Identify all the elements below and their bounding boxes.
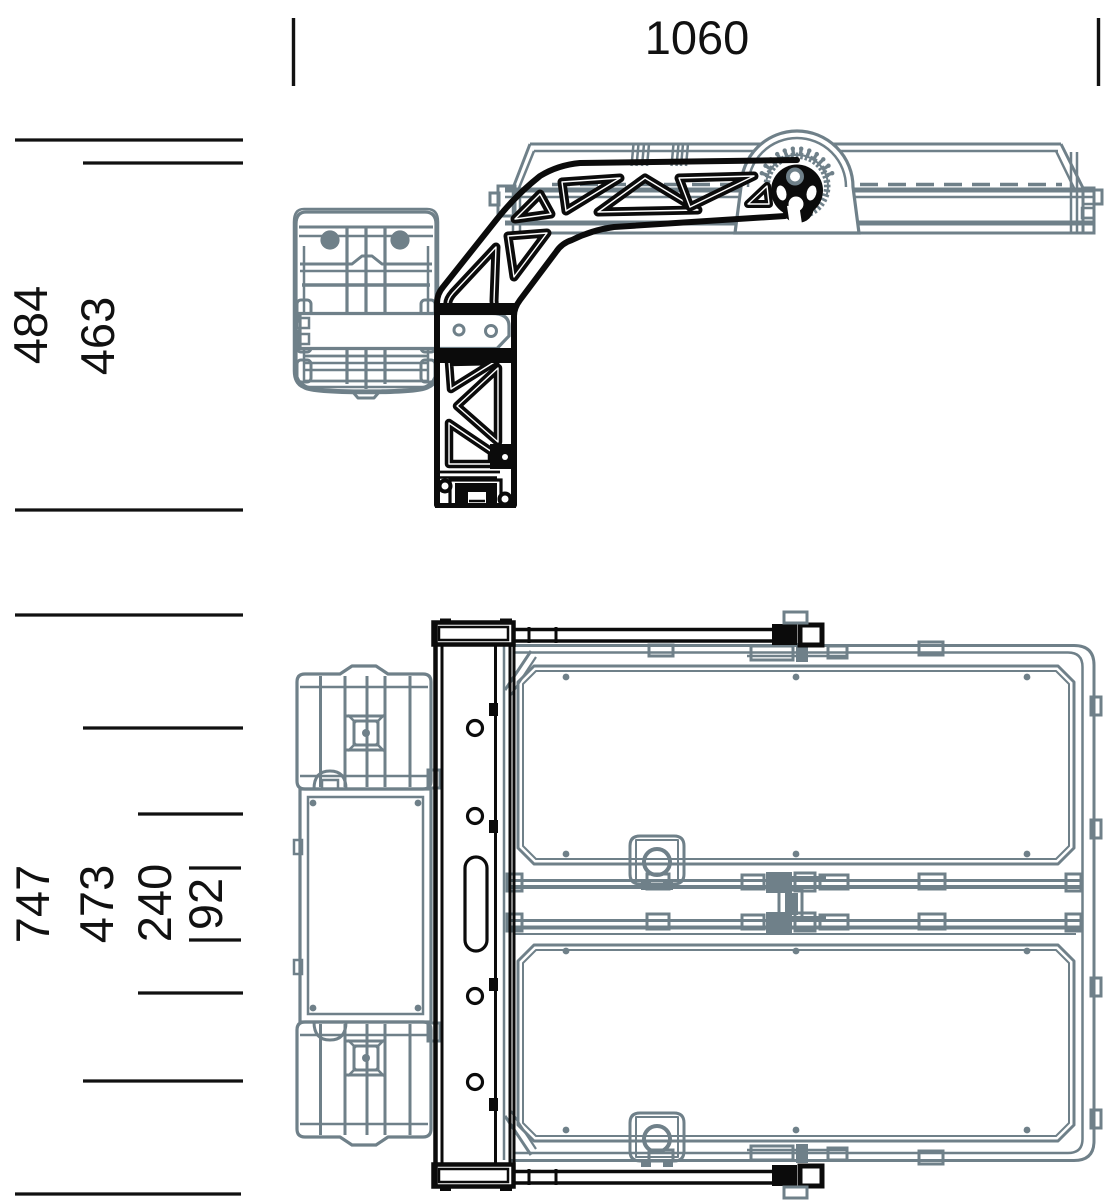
svg-text:747: 747 (6, 865, 59, 943)
svg-text:473: 473 (70, 865, 123, 943)
svg-text:92: 92 (179, 878, 232, 930)
svg-text:1060: 1060 (645, 11, 750, 64)
svg-text:484: 484 (4, 286, 57, 364)
svg-text:463: 463 (71, 297, 124, 375)
svg-text:240: 240 (128, 864, 181, 942)
